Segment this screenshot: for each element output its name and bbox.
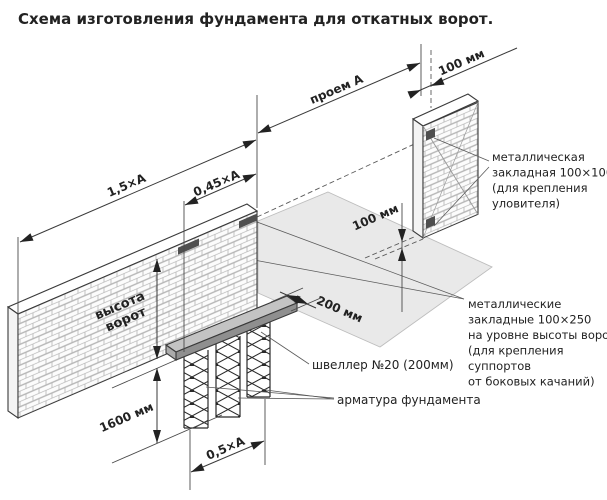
rebar-pile-2: [216, 336, 240, 417]
note-channel: швеллер №20 (200мм): [261, 332, 454, 372]
dim-label-100mm-top: 100 мм: [436, 46, 486, 78]
diagram-page: Схема изготовления фундамента для откатн…: [0, 0, 607, 500]
note-supports-line4: (для крепления: [468, 344, 564, 358]
note-supports-line5: суппортов: [468, 359, 531, 373]
note-catcher-line2: закладная 100×100: [492, 166, 607, 180]
diagram-canvas: Схема изготовления фундамента для откатн…: [0, 0, 607, 500]
diagram-title: Схема изготовления фундамента для откатн…: [18, 10, 493, 28]
rebar-pile-1: [184, 350, 208, 428]
note-support-plates: металлические закладные 100×250 на уровн…: [468, 297, 607, 389]
note-supports-line1: металлические: [468, 297, 561, 311]
note-supports-line3: на уровне высоты ворот: [468, 328, 607, 342]
note-catcher-line3: (для крепления: [492, 181, 588, 195]
note-channel-text: швеллер №20 (200мм): [312, 358, 454, 372]
catcher-post: [413, 94, 478, 238]
rebar-pile-3: [247, 322, 270, 397]
dim-label-1600mm: 1600 мм: [97, 400, 155, 435]
catcher-post-side-face: [413, 119, 423, 238]
dim-label-0-5a: 0,5×А: [204, 434, 247, 463]
note-rebar-text: арматура фундамента: [337, 393, 481, 407]
main-wall-side-face: [8, 307, 18, 418]
note-catcher-line1: металлическая: [492, 150, 585, 164]
note-catcher-line4: уловителя): [492, 197, 560, 211]
note-supports-line6: от боковых качаний): [468, 375, 595, 389]
dim-label-opening-a: проем А: [308, 71, 366, 107]
note-supports-line2: закладные 100×250: [468, 313, 591, 327]
